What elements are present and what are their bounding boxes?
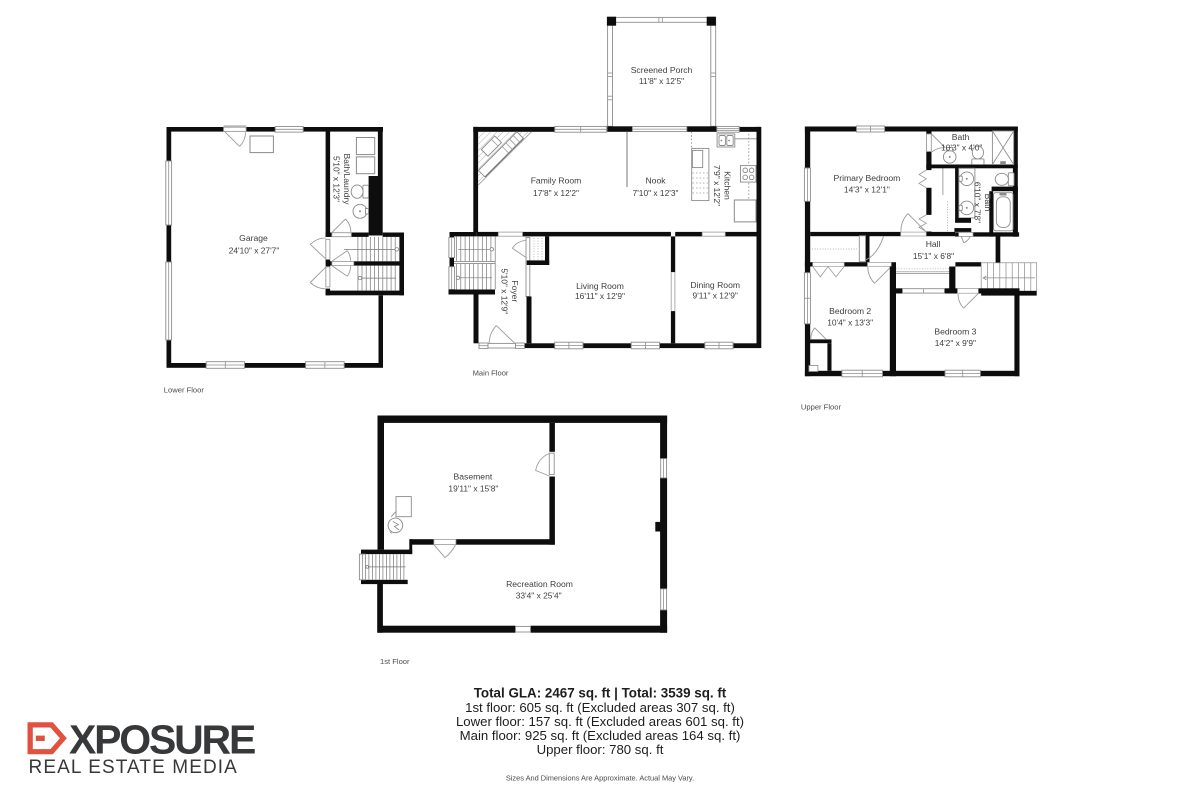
svg-text:Recreation Room: Recreation Room xyxy=(506,579,573,589)
svg-text:10'4" x 13'3": 10'4" x 13'3" xyxy=(827,317,873,327)
svg-text:14'2" x 9'9": 14'2" x 9'9" xyxy=(935,338,976,348)
svg-text:17'8" x 12'2": 17'8" x 12'2" xyxy=(533,188,579,198)
svg-text:5'10" x 12'9": 5'10" x 12'9" xyxy=(500,268,510,314)
svg-text:Bath: Bath xyxy=(952,132,970,142)
svg-text:1st floor: 605 sq. ft (Exclude: 1st floor: 605 sq. ft (Excluded areas 30… xyxy=(465,700,735,715)
svg-text:5'10" x 12'3": 5'10" x 12'3" xyxy=(331,156,341,202)
svg-text:Bedroom 2: Bedroom 2 xyxy=(829,306,871,316)
svg-text:24'10" x 27'7": 24'10" x 27'7" xyxy=(229,245,280,255)
svg-text:Screened Porch: Screened Porch xyxy=(631,65,693,75)
svg-text:XPOSURE: XPOSURE xyxy=(69,717,255,763)
svg-text:11'8" x 12'5": 11'8" x 12'5" xyxy=(639,76,684,86)
svg-text:6'10" x 7'8": 6'10" x 7'8" xyxy=(973,182,983,223)
svg-text:16'11" x 12'9": 16'11" x 12'9" xyxy=(575,291,625,301)
svg-text:REAL ESTATE MEDIA: REAL ESTATE MEDIA xyxy=(29,757,238,778)
svg-text:Bath: Bath xyxy=(983,194,993,212)
svg-text:Lower Floor: Lower Floor xyxy=(164,386,205,395)
svg-text:Dining Room: Dining Room xyxy=(690,280,740,290)
svg-text:Total GLA: 2467 sq. ft | Total: Total GLA: 2467 sq. ft | Total: 3539 sq.… xyxy=(474,686,727,701)
svg-text:Hall: Hall xyxy=(926,239,941,249)
svg-text:Living Room: Living Room xyxy=(576,281,624,291)
svg-text:15'1" x 6'8": 15'1" x 6'8" xyxy=(913,251,954,261)
svg-text:Family Room: Family Room xyxy=(531,176,582,186)
svg-text:Primary Bedroom: Primary Bedroom xyxy=(833,173,900,183)
svg-text:Garage: Garage xyxy=(239,233,268,243)
svg-text:Bedroom 3: Bedroom 3 xyxy=(934,327,976,337)
svg-text:Bath/Laundry: Bath/Laundry xyxy=(342,153,352,205)
svg-text:7'10" x 12'3": 7'10" x 12'3" xyxy=(633,188,679,198)
svg-text:14'3" x 12'1": 14'3" x 12'1" xyxy=(844,185,890,195)
svg-text:Basement: Basement xyxy=(454,472,493,482)
svg-text:1st Floor: 1st Floor xyxy=(380,657,410,666)
svg-text:Foyer: Foyer xyxy=(510,280,520,302)
svg-text:7'9" x 12'2": 7'9" x 12'2" xyxy=(712,165,722,206)
svg-text:Main floor: 925 sq. ft (Exclud: Main floor: 925 sq. ft (Excluded areas 1… xyxy=(460,728,741,743)
svg-text:10'3" x 4'0": 10'3" x 4'0" xyxy=(941,143,982,153)
svg-text:Sizes And Dimensions Are Appro: Sizes And Dimensions Are Approximate. Ac… xyxy=(506,774,694,783)
svg-text:Nook: Nook xyxy=(645,176,666,186)
svg-text:Upper Floor: Upper Floor xyxy=(801,403,842,412)
svg-text:Upper floor: 780 sq. ft: Upper floor: 780 sq. ft xyxy=(537,742,664,757)
svg-text:Main Floor: Main Floor xyxy=(473,369,509,378)
svg-text:Kitchen: Kitchen xyxy=(723,171,733,200)
svg-text:33'4" x 25'4": 33'4" x 25'4" xyxy=(516,591,562,601)
svg-text:9'11" x 12'9": 9'11" x 12'9" xyxy=(693,290,738,300)
svg-text:19'11" x 15'8": 19'11" x 15'8" xyxy=(448,484,498,494)
svg-text:Lower floor: 157 sq. ft (Exclu: Lower floor: 157 sq. ft (Excluded areas … xyxy=(456,714,744,729)
